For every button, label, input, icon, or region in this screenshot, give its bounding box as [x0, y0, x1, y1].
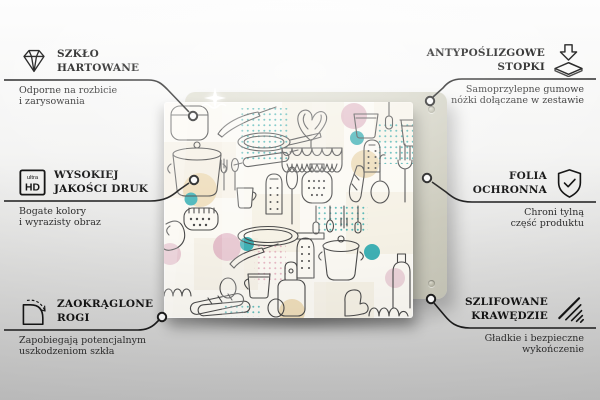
- glass-panel: [164, 102, 413, 318]
- feature-subtitle: Gładkie i bezpieczne wykończenie: [411, 333, 596, 355]
- feature-szlifowane-krawedzie: SZLIFOWANE KRAWĘDZIE Gładkie i bezpieczn…: [411, 290, 596, 355]
- feature-title: FOLIA OCHRONNA: [473, 169, 547, 197]
- feature-title-line1: SZKŁO: [57, 48, 99, 60]
- shield-check-icon: [555, 168, 584, 199]
- feature-folia-ochronna: FOLIA OCHRONNA Chroni tylną część produk…: [411, 164, 596, 229]
- feature-title: SZLIFOWANE KRAWĘDZIE: [465, 295, 548, 323]
- feature-title: ZAOKRĄGLONE ROGI: [57, 297, 153, 325]
- feature-title: ANTYPOŚLIZGOWE STOPKI: [427, 46, 545, 74]
- feature-subtitle: Chroni tylną część produktu: [411, 207, 596, 229]
- feature-subtitle: Samoprzylepne gumowe nóżki dołączane w z…: [411, 84, 596, 106]
- kitchen-doodle-pattern: [164, 102, 413, 318]
- feature-title-line2: HARTOWANE: [57, 62, 139, 74]
- product-infographic: SZKŁO HARTOWANE Odporne na rozbicie i za…: [0, 0, 600, 400]
- feature-szklo-hartowane: SZKŁO HARTOWANE Odporne na rozbicie i za…: [4, 42, 179, 107]
- svg-text:ultra: ultra: [27, 174, 39, 180]
- anti-slip-feet-icon: [553, 43, 584, 77]
- feature-zaokraglone-rogi: ZAOKRĄGLONE ROGI Zapobiegają potencjalny…: [4, 292, 184, 357]
- feature-subtitle: Odporne na rozbicie i zarysowania: [4, 85, 179, 107]
- screw-hole-bottom: [428, 280, 435, 287]
- svg-text:HD: HD: [25, 182, 40, 193]
- screw-hole-top: [428, 106, 435, 113]
- polished-edges-icon: [556, 295, 584, 323]
- feature-wysokiej-jakosci-druk: ultra HD WYSOKIEJ JAKOŚCI DRUK Bogate ko…: [4, 163, 179, 228]
- feature-subtitle: Bogate kolory i wyrazisty obraz: [4, 206, 179, 228]
- feature-subtitle: Zapobiegają potencjalnym uszkodzeniom sz…: [4, 335, 184, 357]
- feature-antyposlizgowe-stopki: ANTYPOŚLIZGOWE STOPKI Samoprzylepne gumo…: [411, 41, 596, 106]
- feature-title: WYSOKIEJ JAKOŚCI DRUK: [54, 168, 148, 196]
- rounded-corner-icon: [19, 296, 49, 326]
- feature-title: SZKŁO HARTOWANE: [57, 47, 139, 75]
- diamond-icon: [19, 48, 49, 74]
- ultra-hd-icon: ultra HD: [19, 169, 46, 196]
